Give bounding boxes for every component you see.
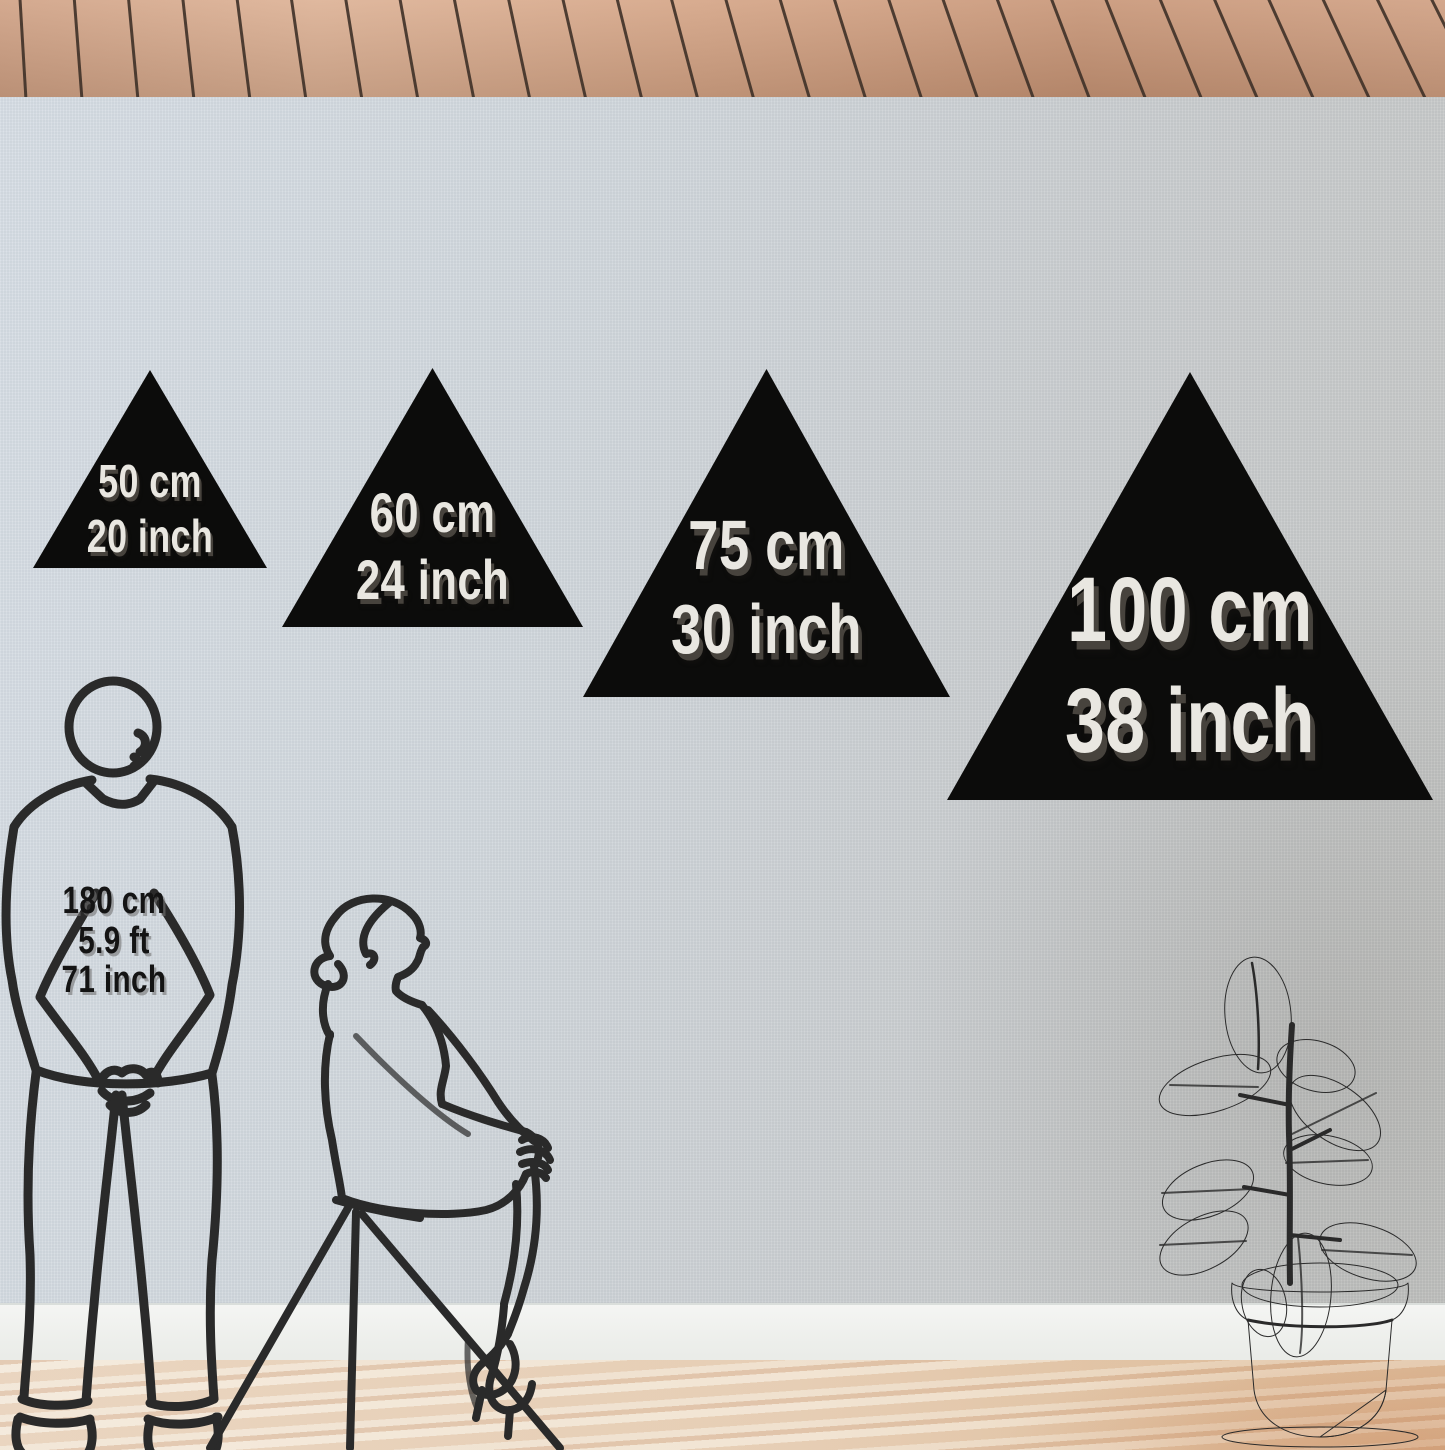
woman-outline-figure — [190, 878, 610, 1450]
size-label-inch: 38 inch — [1000, 666, 1379, 776]
size-guide-mockup: 50 cm 20 inch 60 cm 24 inch 75 cm 30 inc… — [0, 0, 1445, 1450]
height-inch: 71 inch — [47, 961, 181, 1001]
potted-plant — [1140, 945, 1445, 1450]
size-label-inch: 20 inch — [59, 509, 242, 564]
size-label-inch: 24 inch — [315, 546, 550, 613]
ceiling-slat-lines — [0, 0, 1445, 98]
wood-slat-ceiling — [0, 0, 1445, 98]
reference-height-label: 180 cm 5.9 ft 71 inch — [28, 882, 200, 1001]
height-ft: 5.9 ft — [47, 922, 181, 962]
size-label-inch: 30 inch — [623, 587, 909, 671]
height-cm: 180 cm — [47, 882, 181, 922]
